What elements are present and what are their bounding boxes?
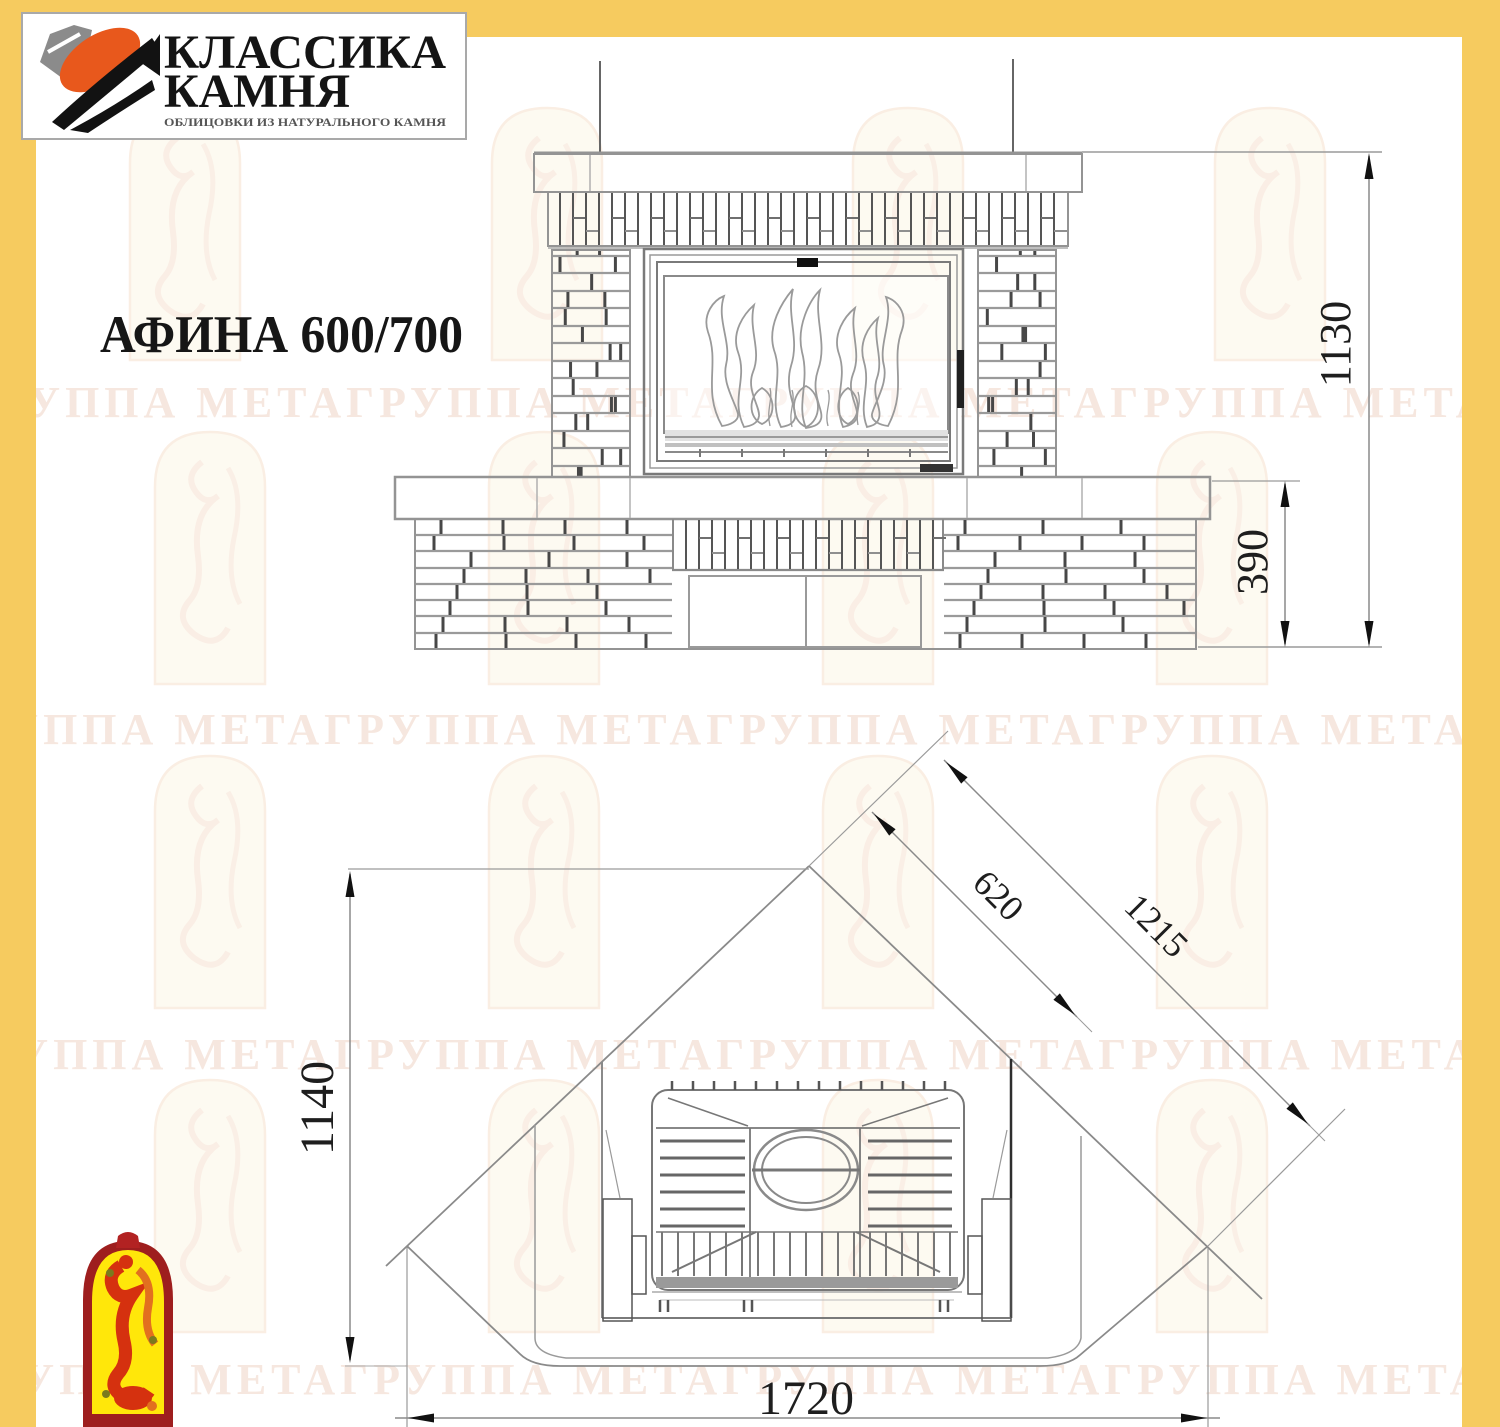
svg-text:ГРУППА МЕТАГРУППА МЕТАГРУППА М: ГРУППА МЕТАГРУППА МЕТАГРУППА МЕТАГРУППА … <box>0 705 1500 754</box>
svg-text:1130: 1130 <box>1311 301 1360 387</box>
svg-text:КАМНЯ: КАМНЯ <box>164 65 350 118</box>
svg-text:390: 390 <box>1228 529 1277 595</box>
svg-text:1140: 1140 <box>291 1061 344 1155</box>
svg-text:ГРУППА МЕТАГРУППА МЕТАГРУППА М: ГРУППА МЕТАГРУППА МЕТАГРУППА МЕТАГРУППА … <box>0 1030 1500 1079</box>
svg-text:ГРУППА МЕТАГРУППА МЕТАГРУППА М: ГРУППА МЕТАГРУППА МЕТАГРУППА МЕТАГРУППА … <box>0 1355 1500 1404</box>
svg-text:АФИНА 600/700: АФИНА 600/700 <box>100 306 463 364</box>
svg-text:ОБЛИЦОВКИ ИЗ НАТУРАЛЬНОГО КАМН: ОБЛИЦОВКИ ИЗ НАТУРАЛЬНОГО КАМНЯ <box>164 115 446 129</box>
svg-text:1720: 1720 <box>758 1372 854 1425</box>
